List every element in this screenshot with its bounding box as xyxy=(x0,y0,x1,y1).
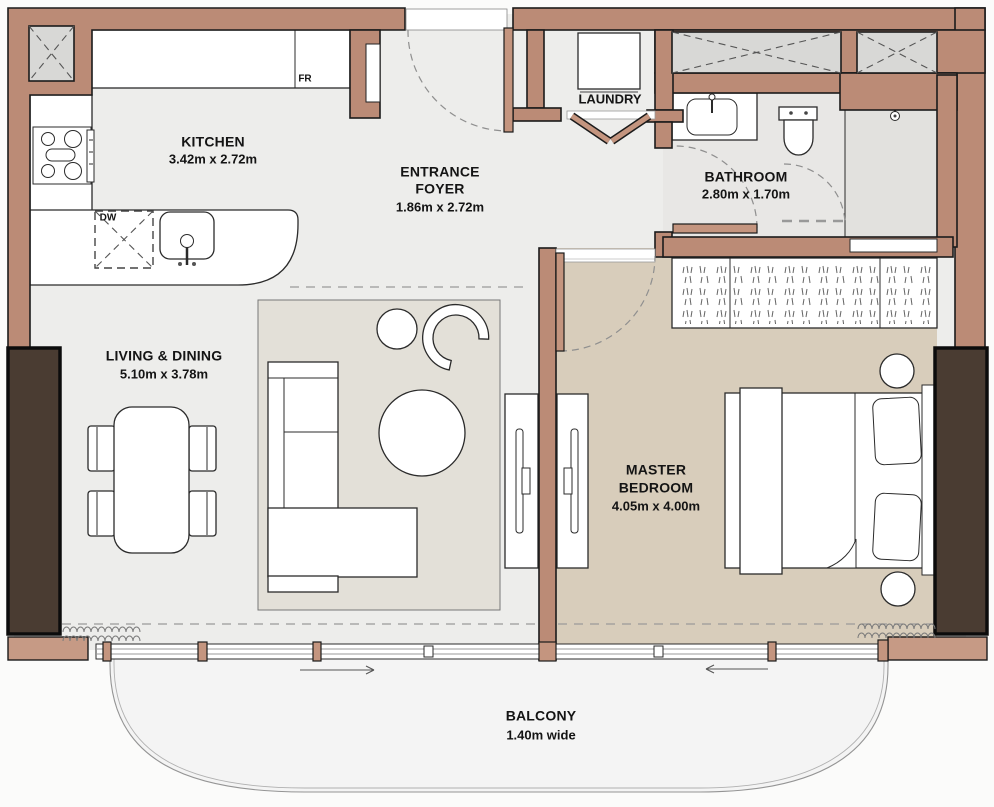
living-dining-dims: 5.10m x 3.78m xyxy=(120,366,208,383)
bathroom-vanity xyxy=(672,93,757,140)
foyer-label-line1: ENTRANCE xyxy=(400,164,479,181)
window-panel-left xyxy=(8,348,60,634)
balcony-area xyxy=(110,646,888,792)
dining-chair xyxy=(189,491,216,536)
bathroom-dims: 2.80m x 1.70m xyxy=(702,186,790,203)
master-bedroom-label-line1: MASTER xyxy=(626,462,686,479)
floor-plan-drawing xyxy=(0,0,994,807)
coffee-table xyxy=(379,390,465,476)
dining-chair xyxy=(88,491,115,536)
kitchen-dims: 3.42m x 2.72m xyxy=(169,151,257,168)
bathroom-label: BATHROOM xyxy=(705,169,788,186)
dining-chair xyxy=(189,426,216,471)
nightstand xyxy=(881,572,915,606)
stove xyxy=(33,127,94,184)
foyer-dims: 1.86m x 2.72m xyxy=(396,199,484,216)
window-panel-right xyxy=(935,348,987,634)
foyer-label-line2: FOYER xyxy=(415,181,464,198)
jamb-notch xyxy=(366,44,380,102)
kitchen-sink xyxy=(160,212,214,266)
tv-unit-bedroom xyxy=(557,394,588,568)
bed xyxy=(725,385,936,575)
washing-machine xyxy=(578,33,640,92)
master-bedroom-label-line2: BEDROOM xyxy=(619,480,694,497)
floor-plan: KITCHEN 3.42m x 2.72m ENTRANCE FOYER 1.8… xyxy=(0,0,994,807)
balcony-label: BALCONY xyxy=(506,708,577,725)
tv-unit-living xyxy=(505,394,538,568)
dining-table xyxy=(114,407,189,553)
dishwasher-tag: DW xyxy=(100,210,117,227)
entrance-recess xyxy=(406,9,507,30)
fridge-tag: FR xyxy=(298,71,311,88)
wardrobe xyxy=(672,258,937,328)
living-dining-label: LIVING & DINING xyxy=(106,348,223,365)
balcony-dims: 1.40m wide xyxy=(506,727,575,744)
floor-shower xyxy=(845,108,937,239)
nightstand xyxy=(880,354,914,388)
master-bedroom-dims: 4.05m x 4.00m xyxy=(612,498,700,515)
kitchen-label: KITCHEN xyxy=(181,134,245,151)
dining-chair xyxy=(88,426,115,471)
side-table xyxy=(377,309,417,349)
laundry-label: LAUNDRY xyxy=(578,91,641,108)
